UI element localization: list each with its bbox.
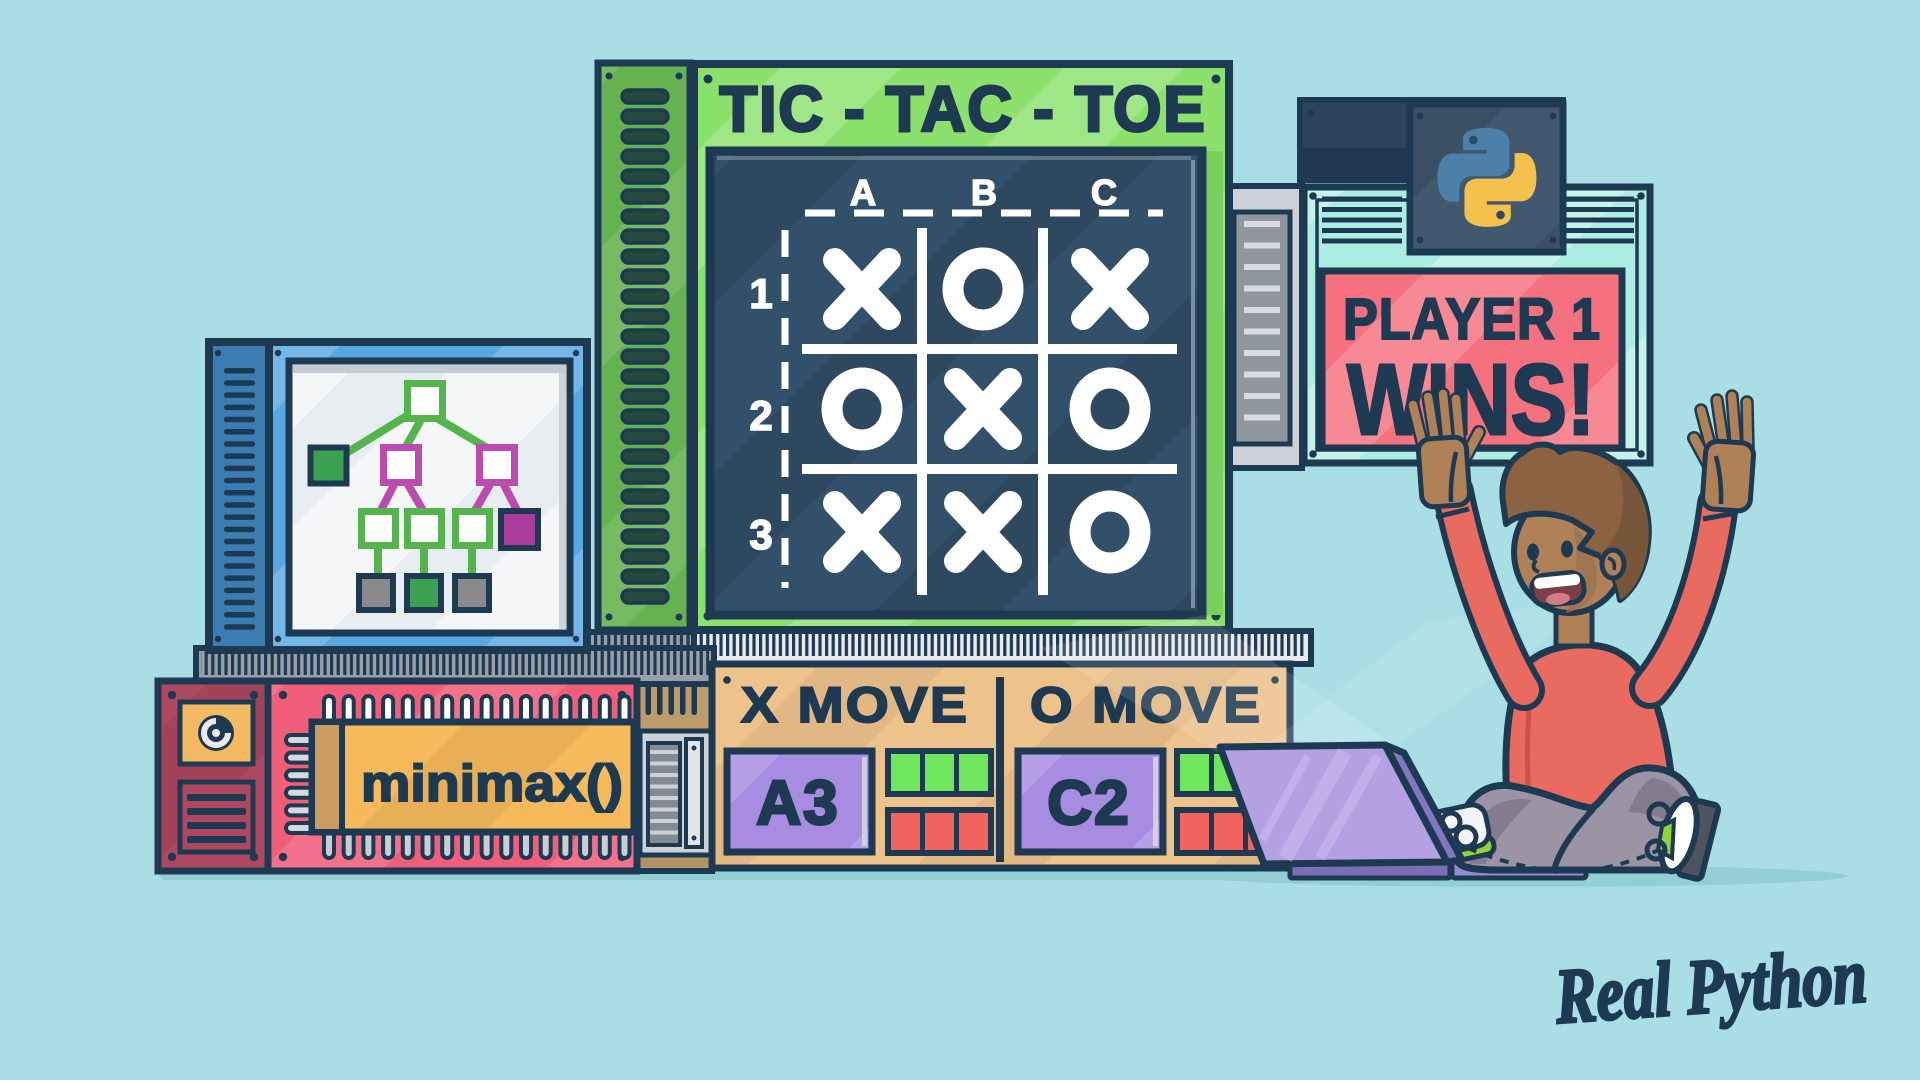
svg-text:A3: A3 — [756, 769, 839, 838]
svg-text:C2: C2 — [1047, 769, 1130, 838]
svg-text:2: 2 — [749, 392, 772, 439]
svg-text:X MOVE: X MOVE — [741, 677, 969, 733]
svg-text:TIC - TAC - TOE: TIC - TAC - TOE — [720, 73, 1207, 145]
svg-text:minimax(): minimax() — [361, 755, 623, 813]
svg-text:B: B — [971, 172, 997, 213]
svg-text:A: A — [850, 172, 876, 213]
svg-text:3: 3 — [749, 511, 772, 558]
svg-text:C: C — [1091, 172, 1117, 213]
svg-text:PLAYER 1: PLAYER 1 — [1343, 287, 1601, 352]
svg-text:1: 1 — [749, 270, 772, 317]
